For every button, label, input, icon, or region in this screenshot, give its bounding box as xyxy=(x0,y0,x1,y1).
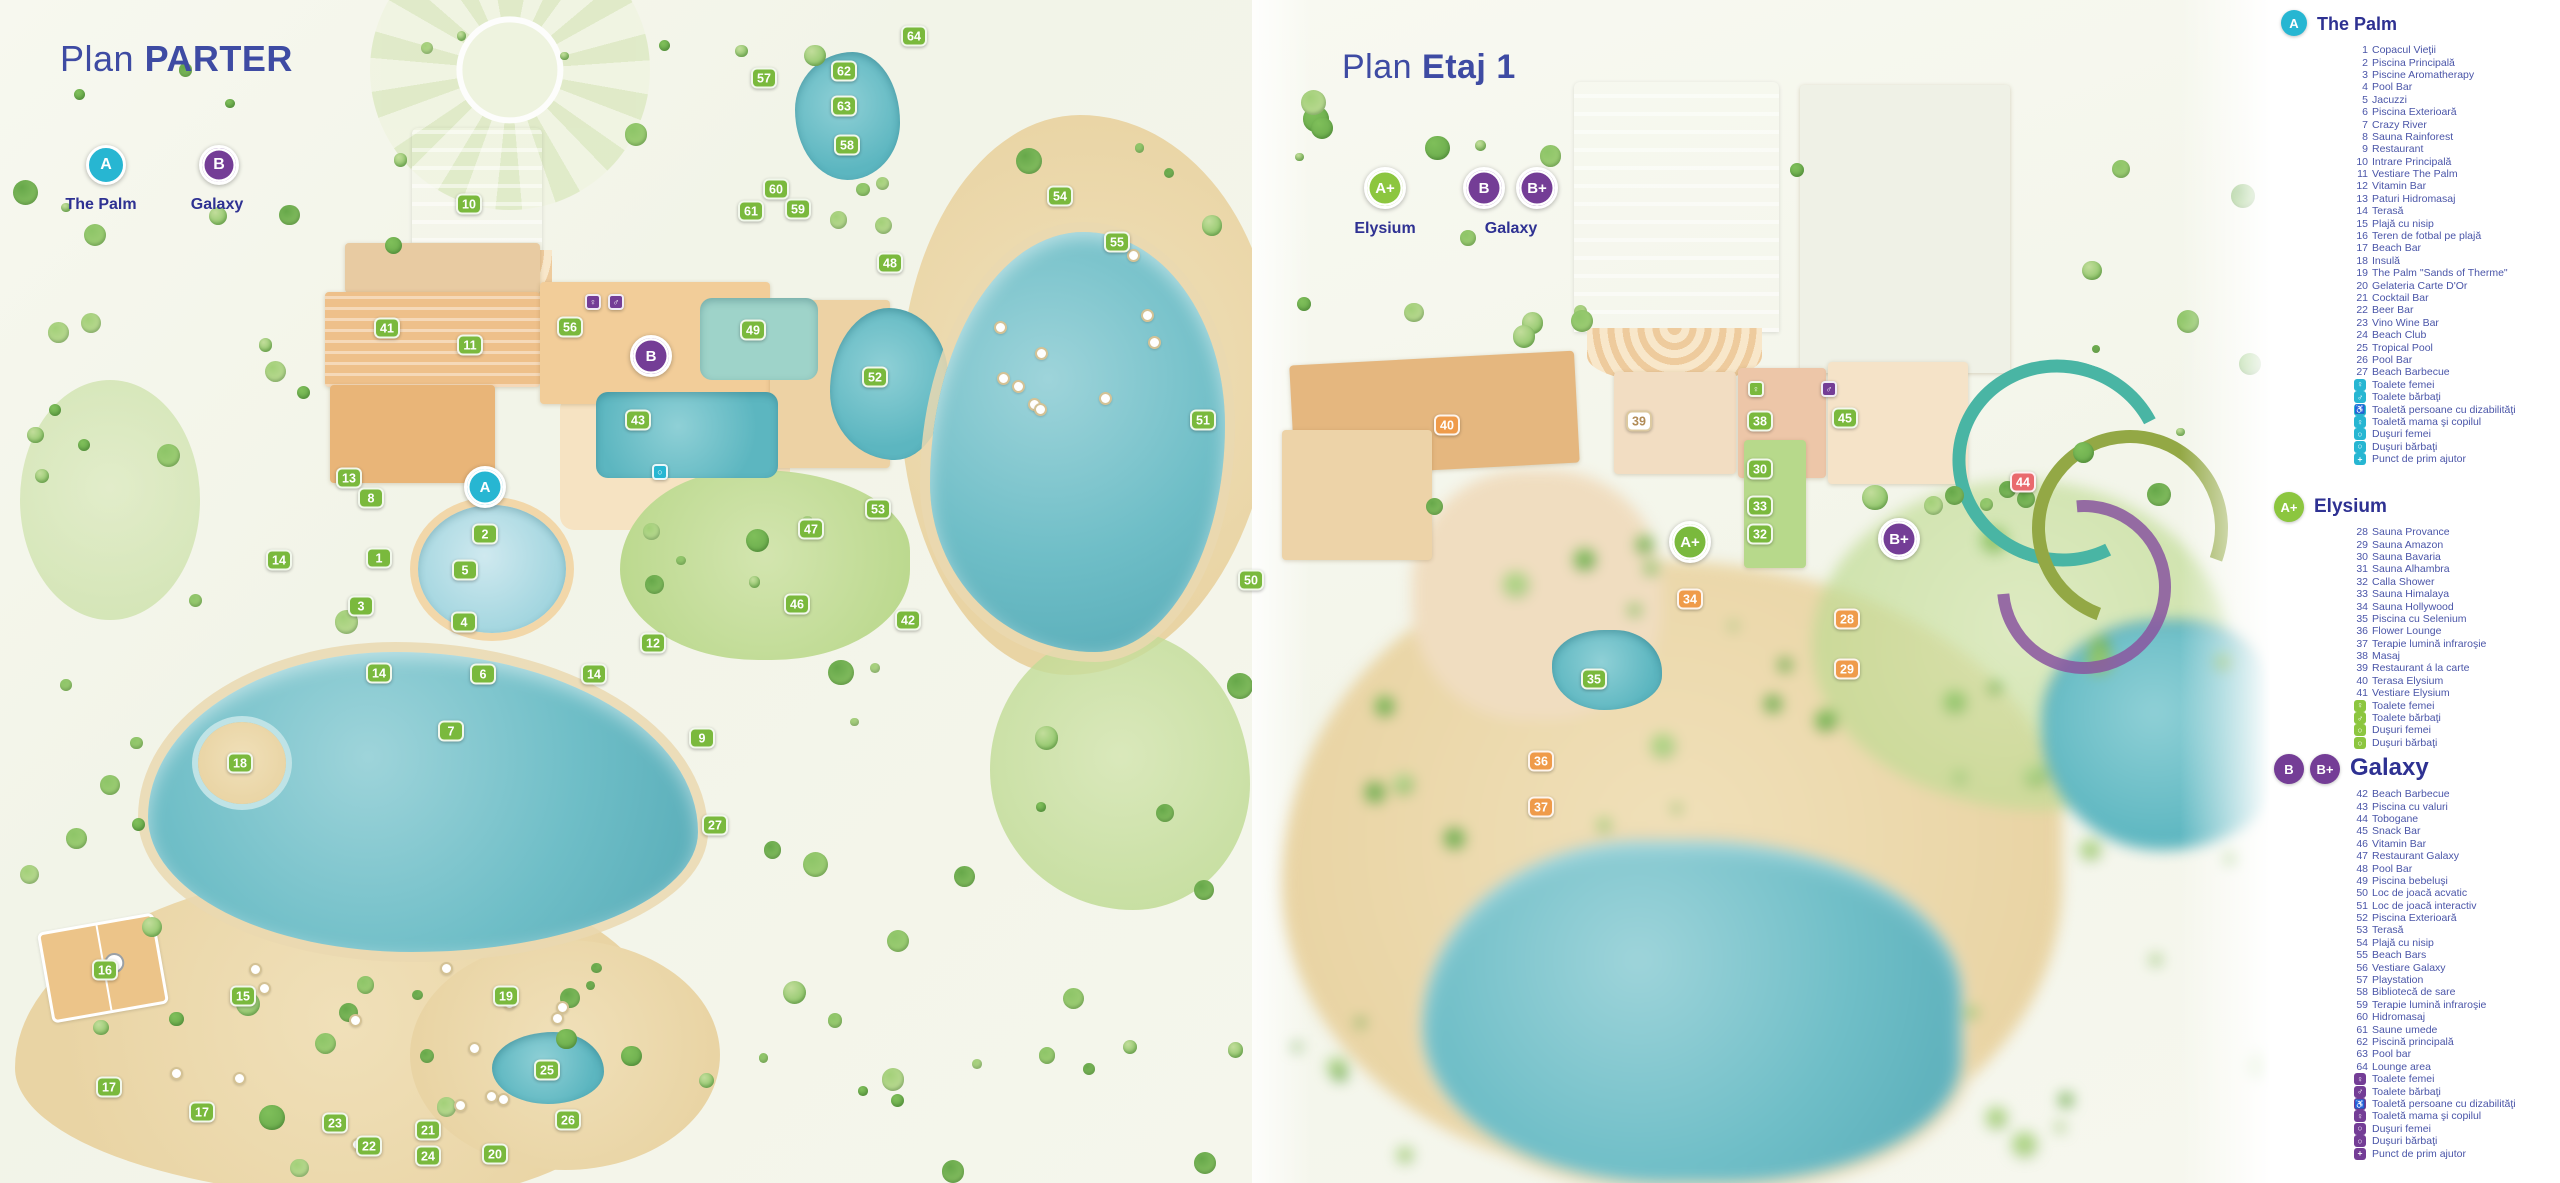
legend-item-label: Piscine Aromatherapy xyxy=(2372,69,2474,81)
legend-icon-label: Toaletă mama şi copilul xyxy=(2372,416,2481,428)
legend-icon-label: Toaletă mama şi copilul xyxy=(2372,1110,2481,1122)
legend-item-number: 6 xyxy=(2352,106,2368,118)
map-marker-11: 11 xyxy=(457,335,483,356)
legend-item-number: 8 xyxy=(2352,131,2368,143)
legend-item-label: Plajă cu nisip xyxy=(2372,218,2434,230)
legend-list-palm: 1Copacul Vieţii2Piscina Principală3Pisci… xyxy=(2270,44,2560,465)
legend-item: 40Terasa Elysium xyxy=(2352,675,2560,687)
map-marker-7: 7 xyxy=(438,721,464,742)
legend-item: 3Piscine Aromatherapy xyxy=(2352,69,2560,81)
legend-icon-row: ♂Toalete bărbaţi xyxy=(2352,391,2560,403)
map-marker-16: 16 xyxy=(92,960,118,981)
legend-item-number: 34 xyxy=(2352,601,2368,613)
legend-section-palm: AThe Palm1Copacul Vieţii2Piscina Princip… xyxy=(2270,8,2560,465)
legend-item-label: Piscină principală xyxy=(2372,1036,2454,1048)
legend-item-number: 53 xyxy=(2352,924,2368,936)
legend-item-label: Lounge area xyxy=(2372,1061,2431,1073)
legend-item-number: 27 xyxy=(2352,366,2368,378)
legend-item: 20Gelateria Carte D'Or xyxy=(2352,279,2560,291)
legend-icon-label: Duşuri bărbaţi xyxy=(2372,737,2437,749)
legend-icon-row: ♀Toalete femei xyxy=(2352,379,2560,391)
legend-item: 41Vestiare Elysium xyxy=(2352,687,2560,699)
legend-section-galaxy: BB+Galaxy42Beach Barbecue43Piscina cu va… xyxy=(2270,752,2560,1160)
toilet-disabled-icon: ♿ xyxy=(2354,1098,2366,1110)
legend-item-number: 29 xyxy=(2352,539,2368,551)
legend-item-number: 2 xyxy=(2352,57,2368,69)
legend-item: 19The Palm "Sands of Therme" xyxy=(2352,267,2560,279)
legend-icon-row: ○Duşuri bărbaţi xyxy=(2352,1135,2560,1147)
map-marker-43: 43 xyxy=(625,410,651,431)
legend-item-label: Crazy River xyxy=(2372,119,2427,131)
legend-item: 15Plajă cu nisip xyxy=(2352,217,2560,229)
map-marker-64: 64 xyxy=(901,26,927,47)
legend-item-label: Calla Shower xyxy=(2372,576,2434,588)
legend-item-label: Pool Bar xyxy=(2372,863,2412,875)
legend-item-label: Piscina cu Selenium xyxy=(2372,613,2467,625)
legend-item: 23Vino Wine Bar xyxy=(2352,317,2560,329)
legend-item-number: 50 xyxy=(2352,887,2368,899)
legend-item: 17Beach Bar xyxy=(2352,242,2560,254)
legend-item: 44Tobogane xyxy=(2352,813,2560,825)
legend-item-number: 64 xyxy=(2352,1061,2368,1073)
map-zone-badge-B+: B+ xyxy=(1878,518,1920,560)
legend-item-number: 58 xyxy=(2352,986,2368,998)
legend-icon-label: Toalete bărbaţi xyxy=(2372,1086,2441,1098)
map-marker-46: 46 xyxy=(784,594,810,615)
legend-icon-label: Toalete femei xyxy=(2372,379,2434,391)
legend-icon-label: Duşuri femei xyxy=(2372,724,2431,736)
legend-item: 55Beach Bars xyxy=(2352,949,2560,961)
legend-icon-label: Toaletă persoane cu dizabilităţi xyxy=(2372,1098,2516,1110)
legend-item: 47Restaurant Galaxy xyxy=(2352,850,2560,862)
legend-item: 43Piscina cu valuri xyxy=(2352,800,2560,812)
legend-item: 42Beach Barbecue xyxy=(2352,788,2560,800)
toilet-mother-child-icon: ♀ xyxy=(2354,1110,2366,1122)
legend-item-label: Playstation xyxy=(2372,974,2423,986)
map-icon-♀: ♀ xyxy=(585,294,601,310)
legend-item-number: 3 xyxy=(2352,69,2368,81)
map-marker-63: 63 xyxy=(831,96,857,117)
map-marker-34: 34 xyxy=(1677,589,1703,610)
map-marker-24: 24 xyxy=(415,1146,441,1167)
legend-item-number: 60 xyxy=(2352,1011,2368,1023)
legend-item-number: 63 xyxy=(2352,1048,2368,1060)
legend-item-label: Vitamin Bar xyxy=(2372,838,2426,850)
map-marker-38: 38 xyxy=(1747,411,1773,432)
legend-item-label: Teren de fotbal pe plajă xyxy=(2372,230,2481,242)
legend-item-number: 22 xyxy=(2352,304,2368,316)
legend-item-label: Beach Barbecue xyxy=(2372,788,2450,800)
legend-item-number: 44 xyxy=(2352,813,2368,825)
legend-item-label: Saune umede xyxy=(2372,1024,2437,1036)
legend-item-label: Piscina Principală xyxy=(2372,57,2455,69)
legend-badge-a: A xyxy=(2281,10,2307,36)
legend-item-number: 57 xyxy=(2352,974,2368,986)
legend-icon-label: Punct de prim ajutor xyxy=(2372,453,2466,465)
legend-item-number: 40 xyxy=(2352,675,2368,687)
legend-item-number: 33 xyxy=(2352,588,2368,600)
legend-badge-b: B xyxy=(2274,754,2304,784)
map-zone-badge-A: A xyxy=(464,466,506,508)
legend-icon-row: ○Duşuri bărbaţi xyxy=(2352,737,2560,749)
legend-icon-row: ♿Toaletă persoane cu dizabilităţi xyxy=(2352,1098,2560,1110)
legend-icon-row: ○Duşuri femei xyxy=(2352,724,2560,736)
legend-item: 49Piscina bebeluşi xyxy=(2352,875,2560,887)
map-marker-14: 14 xyxy=(266,550,292,571)
legend-item: 2Piscina Principală xyxy=(2352,56,2560,68)
map-marker-19: 19 xyxy=(493,986,519,1007)
shower-women-icon: ○ xyxy=(2354,1123,2366,1135)
map-zone-badge-A+: A+ xyxy=(1669,521,1711,563)
legend-item: 32Calla Shower xyxy=(2352,576,2560,588)
legend-item: 28Sauna Provance xyxy=(2352,526,2560,538)
legend-item: 21Cocktail Bar xyxy=(2352,292,2560,304)
legend-item-label: Beach Bar xyxy=(2372,242,2421,254)
map-marker-2: 2 xyxy=(472,524,498,545)
map-marker-14: 14 xyxy=(581,664,607,685)
map-marker-17: 17 xyxy=(189,1102,215,1123)
legend-item: 12Vitamin Bar xyxy=(2352,180,2560,192)
map-zone-badge-B: B xyxy=(630,335,672,377)
legend-item-label: Piscina cu valuri xyxy=(2372,801,2448,813)
legend-item-label: Vestiare Elysium xyxy=(2372,687,2450,699)
legend-panel: AThe Palm1Copacul Vieţii2Piscina Princip… xyxy=(2270,0,2560,1183)
legend-item-label: Copacul Vieţii xyxy=(2372,44,2436,56)
shower-men-icon: ○ xyxy=(2354,441,2366,453)
map-marker-36: 36 xyxy=(1528,751,1554,772)
legend-item-label: Piscina bebeluşi xyxy=(2372,875,2448,887)
legend-item-number: 41 xyxy=(2352,687,2368,699)
legend-item-label: Pool bar xyxy=(2372,1048,2411,1060)
legend-item-number: 46 xyxy=(2352,838,2368,850)
map-marker-45: 45 xyxy=(1832,408,1858,429)
map-marker-62: 62 xyxy=(831,61,857,82)
legend-item: 13Paturi Hidromasaj xyxy=(2352,193,2560,205)
legend-item: 53Terasă xyxy=(2352,924,2560,936)
legend-item-number: 62 xyxy=(2352,1036,2368,1048)
legend-item-number: 35 xyxy=(2352,613,2368,625)
legend-item-number: 20 xyxy=(2352,280,2368,292)
legend-item-number: 42 xyxy=(2352,788,2368,800)
legend-item-number: 51 xyxy=(2352,900,2368,912)
legend-item: 8Sauna Rainforest xyxy=(2352,131,2560,143)
legend-item-label: Tropical Pool xyxy=(2372,342,2433,354)
map-marker-21: 21 xyxy=(415,1120,441,1141)
legend-item-number: 61 xyxy=(2352,1024,2368,1036)
legend-item-number: 10 xyxy=(2352,156,2368,168)
legend-item: 45Snack Bar xyxy=(2352,825,2560,837)
legend-item-label: Gelateria Carte D'Or xyxy=(2372,280,2467,292)
map-marker-49: 49 xyxy=(740,320,766,341)
legend-item-number: 9 xyxy=(2352,143,2368,155)
legend-item-label: Vestiare The Palm xyxy=(2372,168,2458,180)
legend-icon-label: Punct de prim ajutor xyxy=(2372,1148,2466,1160)
map-marker-44: 44 xyxy=(2010,472,2036,493)
legend-icon-row: +Punct de prim ajutor xyxy=(2352,453,2560,465)
legend-icon-label: Duşuri femei xyxy=(2372,428,2431,440)
legend-item: 30Sauna Bavaria xyxy=(2352,551,2560,563)
map-marker-33: 33 xyxy=(1747,496,1773,517)
legend-item-label: Sauna Amazon xyxy=(2372,539,2443,551)
legend-item: 58Bibliotecă de sare xyxy=(2352,986,2560,998)
legend-item: 37Terapie lumină infraroşie xyxy=(2352,638,2560,650)
legend-item: 56Vestiare Galaxy xyxy=(2352,961,2560,973)
legend-item: 29Sauna Amazon xyxy=(2352,538,2560,550)
legend-item: 16Teren de fotbal pe plajă xyxy=(2352,230,2560,242)
toilet-women-icon: ♀ xyxy=(2354,1073,2366,1085)
map-marker-37: 37 xyxy=(1528,797,1554,818)
legend-item-label: Sauna Bavaria xyxy=(2372,551,2441,563)
legend-item-label: Piscina Exterioară xyxy=(2372,912,2457,924)
legend-badge-b-plus: B+ xyxy=(2310,754,2340,784)
legend-item-label: Tobogane xyxy=(2372,813,2418,825)
legend-item: 31Sauna Alhambra xyxy=(2352,563,2560,575)
legend-item-number: 54 xyxy=(2352,937,2368,949)
legend-header-galaxy: BB+Galaxy xyxy=(2270,752,2560,788)
legend-item-label: Restaurant Galaxy xyxy=(2372,850,2459,862)
legend-icon-row: ○Duşuri bărbaţi xyxy=(2352,441,2560,453)
legend-title-elysium: Elysium xyxy=(2314,496,2387,518)
legend-icon-label: Toaletă persoane cu dizabilităţi xyxy=(2372,404,2516,416)
legend-item: 4Pool Bar xyxy=(2352,81,2560,93)
map-marker-59: 59 xyxy=(785,199,811,220)
legend-item-number: 56 xyxy=(2352,962,2368,974)
legend-item: 34Sauna Hollywood xyxy=(2352,600,2560,612)
legend-icon-row: ♀Toalete femei xyxy=(2352,699,2560,711)
legend-item-label: Sauna Hollywood xyxy=(2372,601,2454,613)
map-marker-54: 54 xyxy=(1047,186,1073,207)
map-marker-42: 42 xyxy=(895,610,921,631)
legend-section-elysium: A+Elysium28Sauna Provance29Sauna Amazon3… xyxy=(2270,490,2560,749)
map-marker-58: 58 xyxy=(834,135,860,156)
marker-layer: 64576263581060615954554841115649AB524351… xyxy=(0,0,2560,1183)
map-marker-53: 53 xyxy=(865,499,891,520)
legend-item-number: 55 xyxy=(2352,949,2368,961)
legend-item-label: Beer Bar xyxy=(2372,304,2413,316)
map-marker-27: 27 xyxy=(702,815,728,836)
legend-item-label: Sauna Himalaya xyxy=(2372,588,2449,600)
legend-item-label: Beach Bars xyxy=(2372,949,2426,961)
legend-item: 39Restaurant á la carte xyxy=(2352,662,2560,674)
legend-item: 54Plajă cu nisip xyxy=(2352,937,2560,949)
legend-item: 57Playstation xyxy=(2352,974,2560,986)
legend-item-number: 25 xyxy=(2352,342,2368,354)
legend-item: 50Loc de joacă acvatic xyxy=(2352,887,2560,899)
legend-item-number: 37 xyxy=(2352,638,2368,650)
legend-icon-row: ♀Toalete femei xyxy=(2352,1073,2560,1085)
legend-item-label: Vestiare Galaxy xyxy=(2372,962,2446,974)
legend-item-number: 28 xyxy=(2352,526,2368,538)
legend-item: 52Piscina Exterioară xyxy=(2352,912,2560,924)
legend-item: 61Saune umede xyxy=(2352,1023,2560,1035)
map-marker-30: 30 xyxy=(1747,459,1773,480)
legend-item: 35Piscina cu Selenium xyxy=(2352,613,2560,625)
legend-item-label: Paturi Hidromasaj xyxy=(2372,193,2455,205)
legend-item-label: Vino Wine Bar xyxy=(2372,317,2439,329)
map-marker-52: 52 xyxy=(862,367,888,388)
map-marker-3: 3 xyxy=(348,596,374,617)
legend-item-label: Terasă xyxy=(2372,205,2404,217)
legend-icon-row: ♂Toalete bărbaţi xyxy=(2352,712,2560,724)
legend-item-label: Bibliotecă de sare xyxy=(2372,986,2455,998)
shower-women-icon: ○ xyxy=(2354,724,2366,736)
legend-item-label: Intrare Principală xyxy=(2372,156,2451,168)
legend-item-number: 16 xyxy=(2352,230,2368,242)
legend-item: 18Insulă xyxy=(2352,255,2560,267)
shower-men-icon: ○ xyxy=(2354,737,2366,749)
map-marker-28: 28 xyxy=(1834,609,1860,630)
map-marker-57: 57 xyxy=(751,68,777,89)
map-marker-14: 14 xyxy=(366,663,392,684)
map-marker-12: 12 xyxy=(640,633,666,654)
legend-item-number: 32 xyxy=(2352,576,2368,588)
map-marker-41: 41 xyxy=(374,318,400,339)
legend-item-label: Terapie lumină infraroşie xyxy=(2372,999,2486,1011)
legend-icon-row: ○Duşuri femei xyxy=(2352,428,2560,440)
first-aid-icon: + xyxy=(2354,453,2366,465)
legend-item: 38Masaj xyxy=(2352,650,2560,662)
shower-men-icon: ○ xyxy=(2354,1135,2366,1147)
legend-item-number: 7 xyxy=(2352,119,2368,131)
legend-item: 9Restaurant xyxy=(2352,143,2560,155)
legend-icon-row: ♀Toaletă mama şi copilul xyxy=(2352,416,2560,428)
legend-item: 27Beach Barbecue xyxy=(2352,366,2560,378)
legend-item-number: 18 xyxy=(2352,255,2368,267)
legend-item: 26Pool Bar xyxy=(2352,354,2560,366)
legend-item: 24Beach Club xyxy=(2352,329,2560,341)
legend-item-number: 45 xyxy=(2352,825,2368,837)
legend-item: 51Loc de joacă interactiv xyxy=(2352,900,2560,912)
map-marker-26: 26 xyxy=(555,1110,581,1131)
legend-item-number: 14 xyxy=(2352,205,2368,217)
legend-item-number: 24 xyxy=(2352,329,2368,341)
legend-item-label: Beach Barbecue xyxy=(2372,366,2450,378)
legend-title-galaxy: Galaxy xyxy=(2350,754,2429,782)
legend-item-label: Beach Club xyxy=(2372,329,2426,341)
legend-item-label: Restaurant xyxy=(2372,143,2423,155)
legend-item-label: Loc de joacă interactiv xyxy=(2372,900,2476,912)
legend-title-palm: The Palm xyxy=(2317,14,2397,35)
map-marker-29: 29 xyxy=(1834,659,1860,680)
legend-item-number: 48 xyxy=(2352,863,2368,875)
legend-item-label: Insulă xyxy=(2372,255,2400,267)
map-marker-60: 60 xyxy=(763,179,789,200)
legend-item-label: Sauna Alhambra xyxy=(2372,563,2450,575)
legend-item-label: Masaj xyxy=(2372,650,2400,662)
legend-item-label: Terasă xyxy=(2372,924,2404,936)
legend-item: 36Flower Lounge xyxy=(2352,625,2560,637)
toilet-women-icon: ♀ xyxy=(2354,379,2366,391)
legend-item-label: Pool Bar xyxy=(2372,354,2412,366)
legend-item: 22Beer Bar xyxy=(2352,304,2560,316)
legend-item: 25Tropical Pool xyxy=(2352,341,2560,353)
legend-item-label: Piscina Exterioară xyxy=(2372,106,2457,118)
legend-item-number: 49 xyxy=(2352,875,2368,887)
legend-item-number: 5 xyxy=(2352,94,2368,106)
legend-item-label: Loc de joacă acvatic xyxy=(2372,887,2467,899)
toilet-disabled-icon: ♿ xyxy=(2354,404,2366,416)
map-marker-50: 50 xyxy=(1238,570,1264,591)
map-marker-20: 20 xyxy=(482,1144,508,1165)
map-marker-5: 5 xyxy=(452,560,478,581)
legend-item-number: 47 xyxy=(2352,850,2368,862)
legend-icon-row: ♂Toalete bărbaţi xyxy=(2352,1085,2560,1097)
legend-item: 6Piscina Exterioară xyxy=(2352,106,2560,118)
map-marker-15: 15 xyxy=(230,986,256,1007)
legend-icon-label: Duşuri bărbaţi xyxy=(2372,441,2437,453)
legend-icon-label: Duşuri femei xyxy=(2372,1123,2431,1135)
map-marker-25: 25 xyxy=(534,1060,560,1081)
legend-item: 11Vestiare The Palm xyxy=(2352,168,2560,180)
legend-item-label: Plajă cu nisip xyxy=(2372,937,2434,949)
legend-item: 10Intrare Principală xyxy=(2352,156,2560,168)
map-marker-23: 23 xyxy=(322,1113,348,1134)
map-marker-40: 40 xyxy=(1434,415,1460,436)
map-marker-55: 55 xyxy=(1104,232,1130,253)
map-marker-10: 10 xyxy=(456,194,482,215)
legend-header-elysium: A+Elysium xyxy=(2270,490,2560,526)
legend-icon-label: Toalete femei xyxy=(2372,1073,2434,1085)
legend-item-number: 13 xyxy=(2352,193,2368,205)
legend-item-number: 36 xyxy=(2352,625,2368,637)
legend-icon-label: Toalete femei xyxy=(2372,700,2434,712)
map-marker-61: 61 xyxy=(738,201,764,222)
legend-icon-label: Toalete bărbaţi xyxy=(2372,712,2441,724)
legend-item-number: 38 xyxy=(2352,650,2368,662)
legend-icon-row: ♿Toaletă persoane cu dizabilităţi xyxy=(2352,403,2560,415)
map-marker-35: 35 xyxy=(1581,669,1607,690)
map-marker-6: 6 xyxy=(470,664,496,685)
legend-item-number: 21 xyxy=(2352,292,2368,304)
legend-item: 14Terasă xyxy=(2352,205,2560,217)
legend-icon-row: ○Duşuri femei xyxy=(2352,1123,2560,1135)
legend-item-number: 43 xyxy=(2352,801,2368,813)
legend-item: 33Sauna Himalaya xyxy=(2352,588,2560,600)
legend-item: 62Piscină principală xyxy=(2352,1036,2560,1048)
legend-icon-row: ♀Toaletă mama şi copilul xyxy=(2352,1110,2560,1122)
map-marker-22: 22 xyxy=(356,1136,382,1157)
legend-item-label: Sauna Rainforest xyxy=(2372,131,2453,143)
legend-item-label: Jacuzzi xyxy=(2372,94,2407,106)
legend-item: 63Pool bar xyxy=(2352,1048,2560,1060)
legend-item-number: 19 xyxy=(2352,267,2368,279)
legend-item-label: Restaurant á la carte xyxy=(2372,662,2469,674)
legend-item: 48Pool Bar xyxy=(2352,862,2560,874)
legend-item: 60Hidromasaj xyxy=(2352,1011,2560,1023)
map-marker-17: 17 xyxy=(96,1077,122,1098)
legend-item: 46Vitamin Bar xyxy=(2352,838,2560,850)
legend-item-label: Terapie lumină infraroşie xyxy=(2372,638,2486,650)
legend-item-number: 17 xyxy=(2352,242,2368,254)
resort-map-page: Plan PARTER A The Palm B Galaxy Plan Eta… xyxy=(0,0,2560,1183)
legend-item-number: 30 xyxy=(2352,551,2368,563)
legend-item: 7Crazy River xyxy=(2352,118,2560,130)
legend-item-number: 52 xyxy=(2352,912,2368,924)
legend-item-label: The Palm "Sands of Therme" xyxy=(2372,267,2508,279)
legend-item-number: 59 xyxy=(2352,999,2368,1011)
legend-item-number: 11 xyxy=(2352,168,2368,180)
legend-item: 1Copacul Vieţii xyxy=(2352,44,2560,56)
legend-item-number: 31 xyxy=(2352,563,2368,575)
map-icon-○: ○ xyxy=(652,464,668,480)
map-marker-18: 18 xyxy=(227,753,253,774)
legend-badge-a-plus: A+ xyxy=(2274,492,2304,522)
legend-item-number: 26 xyxy=(2352,354,2368,366)
legend-item-number: 4 xyxy=(2352,81,2368,93)
map-marker-47: 47 xyxy=(798,519,824,540)
legend-item-label: Vitamin Bar xyxy=(2372,180,2426,192)
legend-item-number: 23 xyxy=(2352,317,2368,329)
